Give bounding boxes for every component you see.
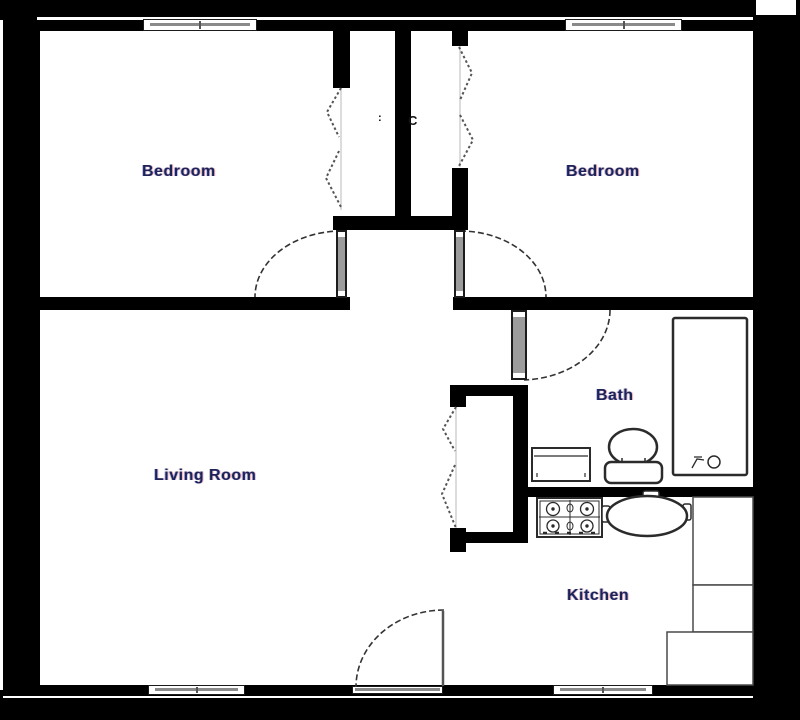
- toilet-seat-hinge: [622, 458, 645, 463]
- wall-right: [753, 0, 800, 720]
- wall-bedrooms-south-left: [40, 297, 350, 310]
- cooktop-stove: [537, 498, 602, 537]
- chair-right: [683, 504, 691, 520]
- stove-center-detail2: [567, 522, 573, 530]
- window-living-room: [148, 685, 245, 695]
- label-closet-right: C: [408, 113, 417, 128]
- wall-closet-south: [333, 216, 468, 230]
- stove-center-detail: [567, 504, 573, 512]
- wall-left: [0, 0, 40, 720]
- kitchen-counter-middle: [693, 585, 753, 632]
- stove-inner-frame: [540, 501, 599, 534]
- entry-door-threshold: [352, 686, 443, 694]
- door-leaf-bath: [511, 310, 527, 380]
- bifold-door-lrcloset-1: [443, 407, 456, 451]
- bifold-door-closet-left-1: [327, 88, 341, 137]
- toilet-tank: [605, 462, 662, 483]
- vanity-sink: [532, 448, 590, 481]
- bifold-door-closet-left-2: [326, 151, 341, 207]
- toilet-bowl: [609, 429, 657, 465]
- door-arc-bath: [524, 310, 610, 380]
- wall-bedrooms-south-right: [453, 297, 753, 310]
- window-bedroom-left: [143, 19, 257, 31]
- bifold-door-closet-right-1: [459, 47, 472, 100]
- door-arc-entry: [356, 610, 444, 687]
- tub-drain-icon: [708, 456, 720, 468]
- burner-2: [547, 520, 559, 532]
- tub-faucet-icon: [692, 457, 704, 468]
- kitchen-counter-bottom: [667, 632, 753, 685]
- window-bedroom-right: [565, 19, 682, 31]
- label-living-room: Living Room: [154, 467, 256, 485]
- wall-lrcloset-east: [513, 385, 528, 543]
- wall-bath-south: [513, 487, 755, 497]
- vanity-detail: [537, 473, 585, 477]
- burner-3-center: [586, 508, 588, 510]
- door-leaf-bedroom-right: [454, 230, 465, 298]
- door-arc-bedroom-right: [460, 231, 546, 297]
- burner-3: [581, 503, 594, 516]
- wall-closet-right-jamb-top: [452, 31, 468, 46]
- wall-closet-left-jamb-top: [333, 31, 350, 88]
- burner-1-center: [552, 508, 554, 510]
- label-bedroom-left: Bedroom: [142, 163, 216, 181]
- label-closet-left-mark: :: [378, 112, 382, 124]
- burner-4-center: [586, 525, 588, 527]
- hairline-bottom: [3, 696, 753, 698]
- label-kitchen: Kitchen: [567, 587, 629, 605]
- burner-2-center: [552, 525, 554, 527]
- kitchen-counter-top: [693, 497, 753, 585]
- bifold-door-lrcloset-2: [442, 465, 456, 528]
- door-arc-bedroom-left: [255, 231, 342, 297]
- chair-left: [602, 506, 610, 522]
- dining-table: [607, 496, 687, 536]
- label-bedroom-right: Bedroom: [566, 163, 640, 181]
- burner-1: [547, 503, 560, 516]
- bifold-door-closet-right-2: [459, 115, 473, 166]
- wall-lrcloset-jamb-top: [450, 385, 466, 407]
- corner-notch-top-right: [756, 0, 796, 15]
- wall-closet-divider: [395, 31, 411, 230]
- door-leaf-bedroom-left: [336, 230, 347, 298]
- bathtub: [673, 318, 747, 475]
- window-kitchen: [553, 685, 653, 695]
- burner-4: [581, 520, 593, 532]
- label-bath: Bath: [596, 387, 634, 405]
- edge-sliver-left: [0, 20, 3, 690]
- wall-lrcloset-jamb-bottom: [450, 528, 466, 552]
- floor-plan: Bedroom Bedroom Living Room Bath Kitchen…: [0, 0, 800, 720]
